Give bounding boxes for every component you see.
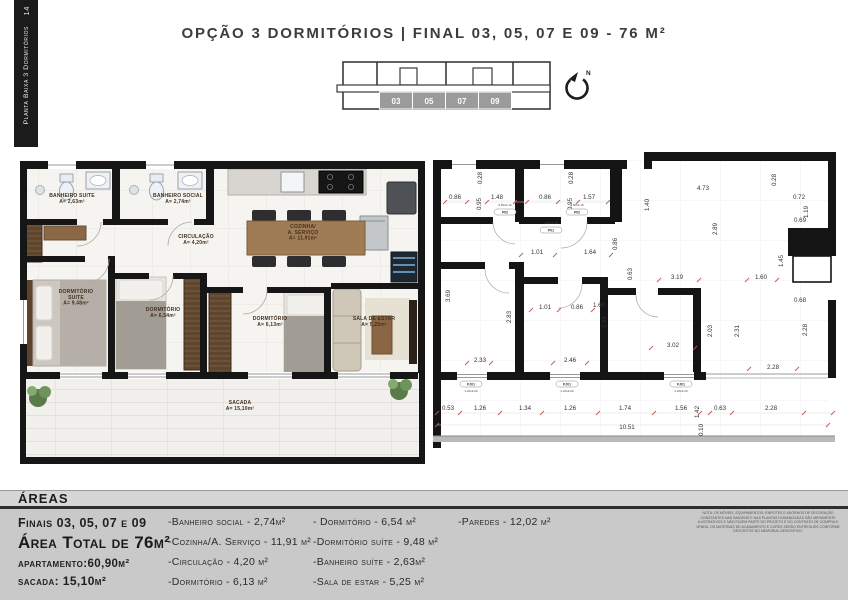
sidebar: 14 Planta Baixa 3 Dormitórios [14, 0, 38, 147]
unit-05: 05 [425, 97, 434, 106]
unit-07: 07 [458, 97, 467, 106]
dimension-label: 1.74 [619, 405, 632, 412]
finais-label: Finais 03, 05, 07 e 09 [18, 516, 147, 530]
svg-text:PJ01: PJ01 [677, 382, 685, 386]
svg-text:P01: P01 [548, 228, 554, 232]
dimension-label: 1.26 [564, 405, 577, 412]
dimension-label: 2.03 [707, 324, 714, 337]
room-label: COZINHA/A. SERVIÇOA= 11,91m² [288, 224, 319, 242]
furnished-floor-plan: BANHEIRO SUITEA= 2,63m²BANHEIRO SOCIALA=… [18, 155, 430, 485]
dimension-label: 2.33 [474, 357, 487, 364]
north-arrow-icon: N [562, 70, 591, 103]
chair [252, 256, 276, 267]
room-label: SACADAA= 15,10m² [226, 400, 255, 412]
svg-text:1.20x2.20: 1.20x2.20 [560, 389, 574, 393]
dimension-label: 1.34 [519, 405, 532, 412]
areas-band [0, 490, 848, 509]
dimension-label: 2.83 [506, 310, 513, 323]
plan-grid [441, 160, 828, 436]
areas-column-2: - Dormitório - 6,54 m² -Dormitório suíte… [313, 512, 438, 592]
north-label: N [586, 70, 591, 77]
dimension-label: 1.42 [694, 405, 701, 418]
room-label: DORMITÓRIOA= 6,13m² [253, 314, 288, 328]
dimension-label: 0.68 [794, 297, 807, 304]
page-title: OPÇÃO 3 DORMITÓRIOS | FINAL 03, 05, 07 E… [0, 25, 848, 42]
dimension-label: 2.28 [802, 323, 809, 336]
dimension-label: 0.95 [476, 197, 483, 210]
total-area-label: Área Total de 76m² [18, 533, 170, 553]
dimension-label: 2.89 [712, 222, 719, 235]
dimension-label: 0.86 [539, 194, 552, 201]
area-item: -Paredes - 12,02 m² [458, 512, 551, 532]
dimension-label: 1.60 [593, 302, 606, 309]
chair [322, 210, 346, 221]
tv-panel [409, 300, 417, 364]
toilet-tank [60, 174, 73, 182]
dimension-label: 1.26 [474, 405, 487, 412]
svg-text:PJ01: PJ01 [467, 382, 475, 386]
apartment-area-label: apartamento:60,90m² [18, 558, 130, 570]
dimension-label: 0.53 [442, 405, 455, 412]
pantry-unit [391, 252, 417, 282]
areas-heading: ÁREAS [18, 491, 69, 506]
dimension-label: 0.72 [793, 194, 806, 201]
refrigerator [387, 182, 416, 214]
dimension-label: 1.57 [583, 194, 596, 201]
dimension-label: 2.66 [601, 315, 608, 328]
dimension-label: 2.46 [564, 357, 577, 364]
dimension-label: 1.45 [778, 254, 785, 267]
dimension-label: 3.69 [445, 289, 452, 302]
area-item: -Circulação - 4,20 m² [168, 552, 311, 572]
key-plan-units: 03 05 07 09 [380, 92, 512, 109]
dimension-label: 0.63 [627, 267, 634, 280]
area-item: -Banheiro social - 2,74m² [168, 512, 311, 532]
svg-text:0.80x2.10: 0.80x2.10 [544, 221, 558, 225]
area-item: -Banheiro suíte - 2,63m² [313, 552, 438, 572]
dresser [44, 226, 86, 240]
wardrobe [209, 290, 231, 372]
dimension-label: 0.10 [698, 423, 705, 436]
dimension-label: 0.86 [612, 237, 619, 250]
dimension-label: 1.60 [755, 274, 768, 281]
disclaimer-note: NOTA: Os móveis, equipamentos, enfeites … [692, 511, 844, 534]
dimension-label: 2.28 [765, 405, 778, 412]
unit-09: 09 [491, 97, 500, 106]
dimension-label: 1.64 [584, 249, 597, 256]
dimension-label: 0.86 [571, 304, 584, 311]
dimensioned-floor-plan: 0.860.280.951.480.860.280.951.571.404.73… [433, 150, 838, 450]
svg-text:1.20x2.20: 1.20x2.20 [674, 389, 688, 393]
area-item: -Cozinha/A. Serviço - 11,91 m² [168, 532, 311, 552]
dimension-label: 10.51 [619, 424, 635, 431]
cooktop [319, 171, 363, 193]
dimension-label: 1.56 [675, 405, 688, 412]
dimension-label: 4.73 [697, 185, 710, 192]
area-item: -Dormitório - 6,13 m² [168, 572, 311, 592]
svg-text:0.80x2.10: 0.80x2.10 [498, 203, 512, 207]
areas-column-1: -Banheiro social - 2,74m² -Cozinha/A. Se… [168, 512, 311, 592]
bed-headboard [26, 280, 33, 366]
balcony-edge [433, 436, 835, 442]
chair [252, 210, 276, 221]
chair [287, 210, 311, 221]
sofa [333, 289, 361, 371]
area-item: -Dormitório suíte - 9,48 m² [313, 532, 438, 552]
dimension-label: 0.28 [771, 173, 778, 186]
svg-text:P02: P02 [574, 210, 580, 214]
dimension-label: 3.19 [671, 274, 684, 281]
svg-text:1.20x2.20: 1.20x2.20 [464, 389, 478, 393]
page-number: 14 [22, 6, 31, 16]
room-label: CIRCULAÇÃOA= 4,20m² [178, 233, 214, 246]
chair [322, 256, 346, 267]
areas-column-3: -Paredes - 12,02 m² [458, 512, 551, 532]
dimension-label: 0.28 [568, 171, 575, 184]
dimension-label: 0.86 [449, 194, 462, 201]
unit-03: 03 [392, 97, 401, 106]
dimension-label: 1.01 [539, 304, 552, 311]
svg-text:PJ01: PJ01 [563, 382, 571, 386]
kitchen-sink [281, 172, 304, 192]
svg-text:0.80x2.10: 0.80x2.10 [570, 203, 584, 207]
area-item: - Dormitório - 6,54 m² [313, 512, 438, 532]
dimension-label: 2.28 [767, 364, 780, 371]
svg-text:P02: P02 [502, 210, 508, 214]
dimension-label: 0.69 [794, 217, 807, 224]
dimension-label: 0.28 [477, 171, 484, 184]
dimension-label: 1.48 [491, 194, 504, 201]
shaft [793, 256, 831, 282]
building-key-plan: 03 05 07 09 N [335, 56, 600, 116]
dimension-label: 0.63 [714, 405, 727, 412]
dimension-label: 3.02 [667, 342, 680, 349]
dimension-label: 1.01 [531, 249, 544, 256]
ceiling-light [36, 186, 45, 195]
area-item: -Sala de estar - 5,25 m² [313, 572, 438, 592]
balcony-area-label: sacada: 15,10m² [18, 574, 106, 588]
chair [287, 256, 311, 267]
dimension-label: 1.40 [644, 198, 651, 211]
room-label: DORMITÓRIOA= 6,54m² [146, 305, 181, 319]
dimension-label: 2.31 [734, 324, 741, 337]
